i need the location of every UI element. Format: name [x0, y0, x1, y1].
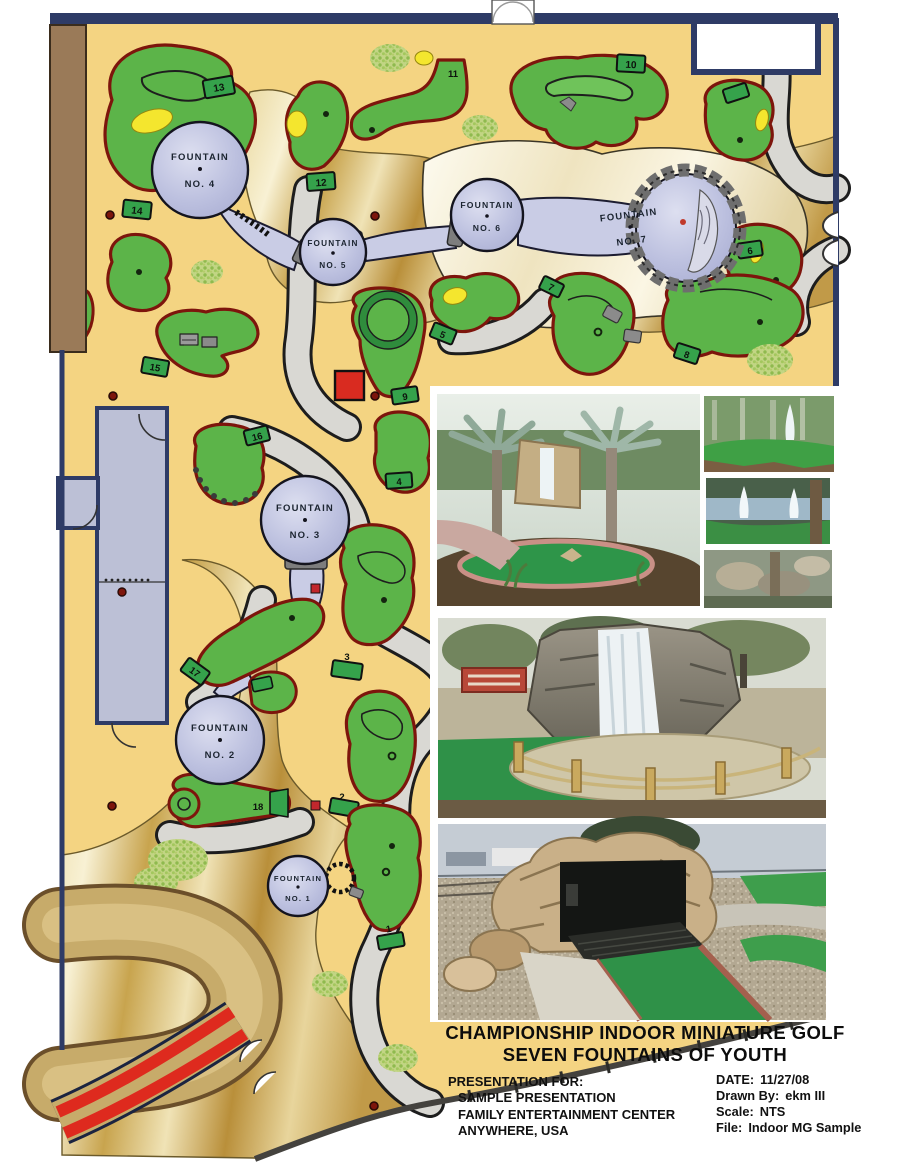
photo-course-fountain: [704, 396, 834, 472]
fountain-5: FOUNTAIN NO. 5: [300, 219, 366, 285]
sheet-title: CHAMPIONSHIP INDOOR MINIATURE GOLF: [435, 1022, 855, 1044]
svg-text:FOUNTAIN: FOUNTAIN: [171, 152, 229, 163]
park-sign: [462, 668, 526, 692]
svg-text:11: 11: [448, 69, 459, 80]
top-door: [492, 0, 534, 24]
meta-block: DATE:11/27/08 Drawn By:ekm III Scale:NTS…: [716, 1072, 861, 1135]
golf-hole-16: 16: [193, 424, 270, 506]
svg-text:NO. 2: NO. 2: [205, 750, 236, 761]
fountain-3: FOUNTAIN NO. 3: [261, 476, 349, 564]
fountain-1: FOUNTAIN NO. 1: [268, 856, 328, 916]
fountain-4: FOUNTAIN NO. 4: [152, 122, 248, 218]
fountain-2: FOUNTAIN NO. 2: [176, 696, 264, 784]
svg-text:FOUNTAIN: FOUNTAIN: [274, 874, 322, 883]
golf-hole-small: [249, 672, 296, 713]
fountain-6: FOUNTAIN NO. 6: [451, 179, 523, 251]
svg-text:12: 12: [315, 178, 327, 190]
wall-top: [50, 13, 838, 24]
presentation-line: FAMILY ENTERTAINMENT CENTER: [448, 1107, 675, 1123]
meta-scale: Scale:NTS: [716, 1104, 861, 1120]
svg-text:NO. 1: NO. 1: [285, 894, 311, 903]
waterfall-photo: [430, 612, 844, 822]
svg-text:10: 10: [625, 60, 637, 72]
meta-drawn: Drawn By:ekm III: [716, 1088, 861, 1104]
svg-text:2: 2: [339, 792, 344, 803]
svg-text:FOUNTAIN: FOUNTAIN: [460, 200, 513, 210]
golf-hole-4: 4: [374, 412, 430, 492]
building-notch: [694, 24, 818, 72]
presentation-block: PRESENTATION FOR: SAMPLE PRESENTATION FA…: [448, 1074, 675, 1140]
svg-text:FOUNTAIN: FOUNTAIN: [307, 239, 358, 248]
svg-text:18: 18: [253, 802, 264, 813]
svg-text:14: 14: [131, 205, 144, 217]
photo-palms-pond: [437, 394, 700, 606]
presentation-sheet: 13 14 15 12 11: [0, 0, 900, 1165]
red-square-marker: [335, 371, 364, 400]
title-block: CHAMPIONSHIP INDOOR MINIATURE GOLF SEVEN…: [435, 1022, 855, 1066]
svg-text:NO. 5: NO. 5: [319, 261, 346, 270]
photo-water-jets: [706, 478, 830, 544]
svg-text:3: 3: [344, 652, 349, 663]
course-map: 13 14 15 12 11: [0, 0, 900, 1165]
wall-brown-strip: [50, 25, 86, 352]
presentation-heading: PRESENTATION FOR:: [448, 1074, 675, 1090]
small-red-marker-2: [311, 584, 320, 593]
presentation-line: SAMPLE PRESENTATION: [448, 1090, 675, 1106]
svg-text:FOUNTAIN: FOUNTAIN: [276, 503, 334, 514]
cave-photo: [430, 816, 844, 1022]
svg-text:NO. 3: NO. 3: [290, 530, 321, 541]
presentation-line: ANYWHERE, USA: [448, 1123, 675, 1139]
photo-collage: [430, 386, 844, 614]
svg-text:NO. 4: NO. 4: [185, 179, 216, 190]
meta-file: File:Indoor MG Sample: [716, 1120, 861, 1136]
photo-rock-garden: [704, 550, 832, 608]
sheet-subtitle: SEVEN FOUNTAINS OF YOUTH: [435, 1044, 855, 1066]
svg-text:NO. 6: NO. 6: [473, 223, 501, 233]
golf-hole-top-right: [705, 80, 773, 160]
meta-date: DATE:11/27/08: [716, 1072, 861, 1088]
svg-text:FOUNTAIN: FOUNTAIN: [191, 723, 249, 734]
small-red-marker: [311, 801, 320, 810]
